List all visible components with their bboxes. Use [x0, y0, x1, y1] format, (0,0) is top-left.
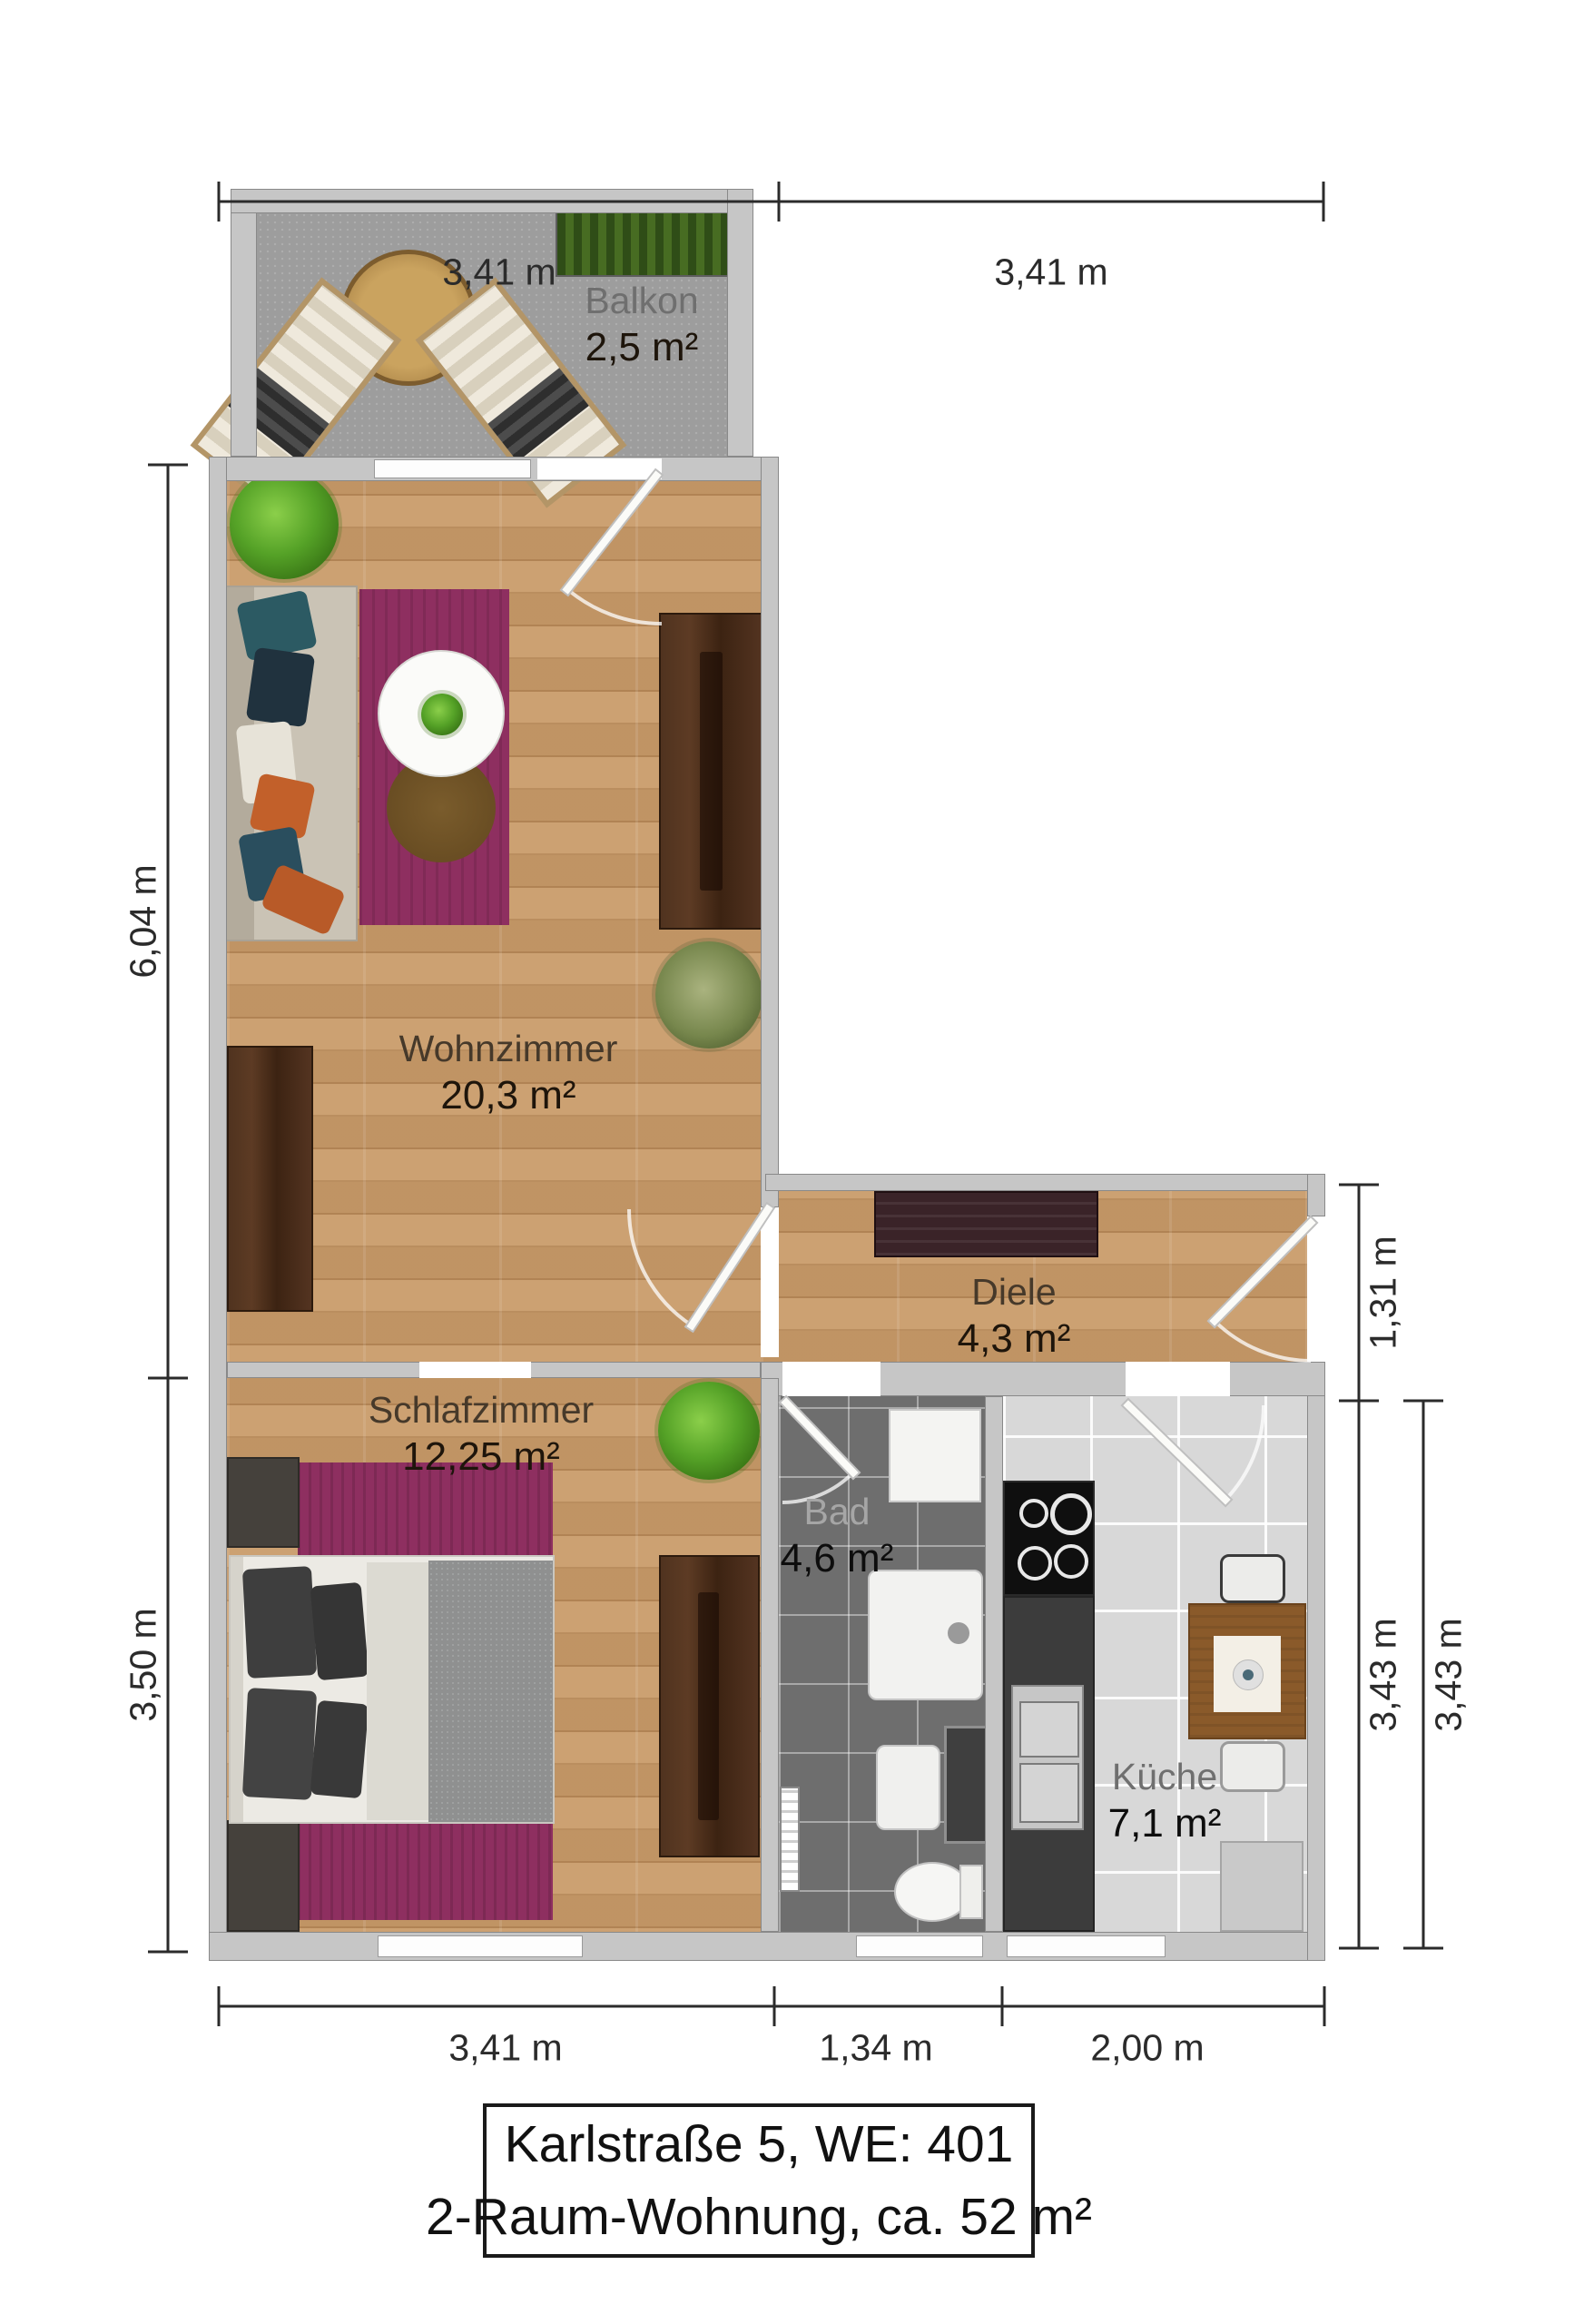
- room-name: Wohnzimmer: [399, 1026, 618, 1071]
- wall-right-upper: [1307, 1174, 1325, 1216]
- room-area: 7,1 m²: [1108, 1799, 1222, 1848]
- washbasin: [868, 1570, 983, 1700]
- chair-top: [1220, 1554, 1285, 1603]
- wall-diele-top: [765, 1174, 1325, 1191]
- room-label-balkon: Balkon 2,5 m²: [585, 278, 698, 372]
- bed-pillow: [242, 1566, 317, 1679]
- coffee-table: [378, 650, 505, 777]
- dim-right-outer: 3,43 m: [1428, 1618, 1471, 1731]
- installation-shaft: [944, 1726, 989, 1844]
- nightstand-bottom: [227, 1820, 300, 1932]
- plate-icon: [1233, 1659, 1264, 1690]
- sofa-pillow: [246, 647, 315, 727]
- plant-wohnzimmer-icon: [230, 470, 339, 579]
- dim-top-left: 3,41 m: [442, 251, 556, 294]
- room-area: 20,3 m²: [399, 1071, 618, 1120]
- room-label-wohnzimmer: Wohnzimmer 20,3 m²: [399, 1026, 618, 1120]
- kitchen-sink-unit: [1011, 1685, 1084, 1830]
- radiator: [780, 1787, 800, 1892]
- stove: [1003, 1481, 1095, 1596]
- nightstand-top: [227, 1457, 300, 1548]
- plate-center: [1243, 1669, 1254, 1680]
- window-kueche: [1007, 1935, 1166, 1957]
- dim-left-upper: 6,04 m: [123, 864, 165, 978]
- room-area: 12,25 m²: [369, 1433, 594, 1482]
- balcony-wall-top: [231, 189, 753, 213]
- wohnzimmer-diele-opening: [761, 1207, 779, 1357]
- sofa: [221, 586, 358, 941]
- bed-pillow: [310, 1582, 369, 1680]
- shower-washing-machine: [889, 1409, 981, 1502]
- wall-right-lower: [1307, 1362, 1325, 1961]
- balcony-wall-left: [231, 189, 257, 457]
- dim-right-inner: 3,43 m: [1362, 1618, 1405, 1731]
- dim-bottom-right: 2,00 m: [1090, 2027, 1204, 2070]
- room-name: Diele: [958, 1269, 1071, 1315]
- wardrobe-schlafzimmer: [659, 1555, 760, 1857]
- title-line-address: Karlstraße 5, WE: 401: [505, 2108, 1014, 2181]
- table-plant-icon: [421, 694, 463, 735]
- wardrobe-handle: [700, 652, 723, 890]
- kueche-door-opening: [1126, 1362, 1230, 1396]
- room-name: Küche: [1108, 1754, 1222, 1799]
- room-name: Balkon: [585, 278, 698, 323]
- planter-box: [556, 206, 753, 277]
- fridge: [1220, 1841, 1303, 1932]
- window-bad: [856, 1935, 983, 1957]
- bed-duvet: [428, 1561, 553, 1822]
- stove-burner: [1019, 1499, 1048, 1528]
- faucet-icon: [948, 1622, 969, 1644]
- plant-schlafzimmer-icon: [658, 1382, 760, 1480]
- stove-burner: [1018, 1546, 1052, 1581]
- wardrobe-wohnzimmer: [659, 613, 765, 930]
- balcony-wall-right: [727, 189, 753, 457]
- room-name: Schlafzimmer: [369, 1387, 594, 1433]
- room-area: 4,3 m²: [958, 1315, 1071, 1364]
- title-line-description: 2-Raum-Wohnung, ca. 52 m²: [426, 2181, 1092, 2253]
- bed: [229, 1555, 555, 1824]
- small-sink: [876, 1745, 940, 1830]
- window-schlafzimmer: [378, 1935, 583, 1957]
- room-area: 4,6 m²: [781, 1534, 894, 1583]
- room-name: Bad: [781, 1489, 894, 1534]
- sink-drawer: [1019, 1701, 1079, 1758]
- stove-burner: [1050, 1493, 1092, 1535]
- entrance-door-opening: [1307, 1216, 1325, 1362]
- room-area: 2,5 m²: [585, 323, 698, 372]
- floor-plan: Balkon 2,5 m² Wohnzimmer 20,3 m² Diele 4…: [0, 0, 1574, 2324]
- placemat: [1214, 1636, 1281, 1712]
- schlafzimmer-door-opening: [419, 1362, 531, 1378]
- bed-pillow: [310, 1700, 369, 1798]
- toilet-tank: [959, 1865, 983, 1919]
- title-box: Karlstraße 5, WE: 401 2-Raum-Wohnung, ca…: [483, 2103, 1035, 2258]
- room-label-kueche: Küche 7,1 m²: [1108, 1754, 1222, 1848]
- bed-pillow: [242, 1688, 317, 1800]
- wall-wohnzimmer-right: [761, 457, 779, 1207]
- wall-schlafzimmer-right: [761, 1378, 779, 1932]
- dim-right-upper: 1,31 m: [1362, 1236, 1405, 1349]
- chair-bottom: [1220, 1741, 1285, 1792]
- dining-table: [1188, 1603, 1306, 1739]
- wardrobe-handle: [698, 1592, 720, 1819]
- toilet: [894, 1857, 981, 1923]
- dim-bottom-middle: 1,34 m: [819, 2027, 932, 2070]
- balcony-door-opening: [537, 458, 662, 479]
- plant-wohnzimmer-2-icon: [655, 941, 762, 1049]
- wall-bad-kueche: [985, 1396, 1003, 1932]
- bed-headboard: [231, 1557, 243, 1822]
- wall-left: [209, 457, 227, 1961]
- sink-drawer: [1019, 1763, 1079, 1823]
- dim-left-lower: 3,50 m: [123, 1608, 165, 1721]
- window-wohnzimmer: [374, 459, 531, 478]
- stove-burner: [1054, 1544, 1088, 1579]
- dim-bottom-left: 3,41 m: [448, 2027, 562, 2070]
- bad-door-opening: [782, 1362, 880, 1396]
- room-label-schlafzimmer: Schlafzimmer 12,25 m²: [369, 1387, 594, 1482]
- room-label-bad: Bad 4,6 m²: [781, 1489, 894, 1583]
- lounger-cushion: [487, 368, 589, 462]
- sideboard-diele: [874, 1191, 1098, 1257]
- dim-top-right: 3,41 m: [994, 251, 1107, 294]
- room-label-diele: Diele 4,3 m²: [958, 1269, 1071, 1364]
- lowboard-wohnzimmer: [227, 1046, 313, 1312]
